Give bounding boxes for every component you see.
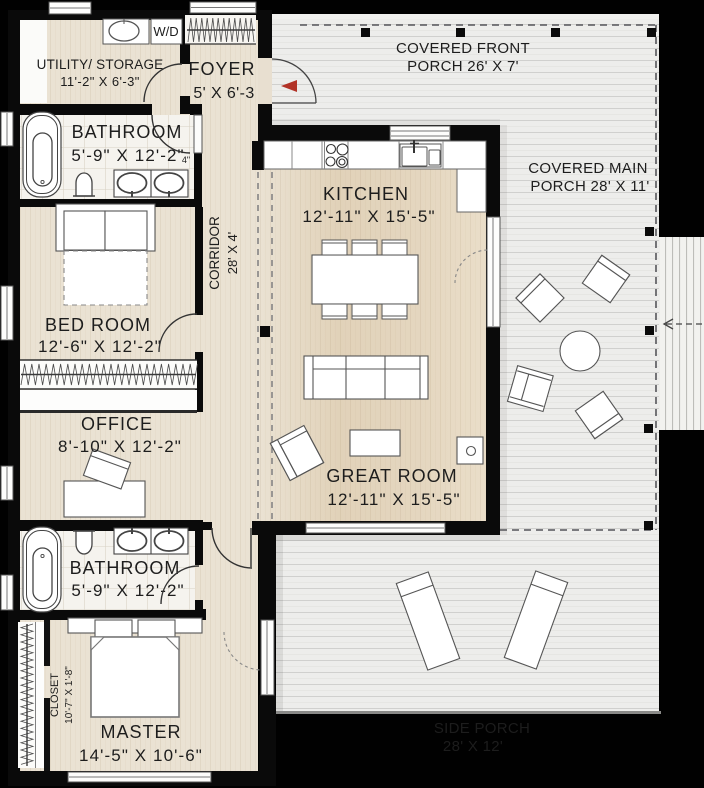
svg-text:W/D: W/D <box>153 24 178 39</box>
svg-text:BED ROOM: BED ROOM <box>45 315 151 335</box>
svg-text:PORCH 26' X 7': PORCH 26' X 7' <box>407 58 519 75</box>
svg-text:5'-9" X 12'-2": 5'-9" X 12'-2" <box>71 146 184 165</box>
svg-text:4": 4" <box>182 155 190 165</box>
svg-text:14'-5" X 10'-6": 14'-5" X 10'-6" <box>79 746 203 765</box>
svg-text:12'-11" X 15'-5": 12'-11" X 15'-5" <box>327 490 460 509</box>
svg-text:UTILITY/ STORAGE: UTILITY/ STORAGE <box>37 57 164 72</box>
svg-text:GREAT ROOM: GREAT ROOM <box>326 466 457 486</box>
svg-text:BATHROOM: BATHROOM <box>72 122 183 142</box>
svg-text:5'-9" X 12'-2": 5'-9" X 12'-2" <box>71 581 184 600</box>
svg-text:10'-7" X 1'-8": 10'-7" X 1'-8" <box>64 666 75 724</box>
svg-text:11'-2" X 6'-3": 11'-2" X 6'-3" <box>60 74 140 89</box>
svg-text:5' X 6'-3: 5' X 6'-3 <box>193 85 254 102</box>
svg-text:COVERED FRONT: COVERED FRONT <box>396 40 530 57</box>
svg-text:28' X 12': 28' X 12' <box>443 738 503 755</box>
svg-text:CORRIDOR: CORRIDOR <box>207 216 222 290</box>
svg-text:KITCHEN: KITCHEN <box>323 184 409 204</box>
svg-text:OFFICE: OFFICE <box>81 414 153 434</box>
svg-text:FOYER: FOYER <box>188 59 255 79</box>
svg-text:SIDE PORCH: SIDE PORCH <box>434 720 530 737</box>
svg-text:28' X 4': 28' X 4' <box>225 232 240 275</box>
svg-text:PORCH 28' X 11': PORCH 28' X 11' <box>530 178 649 195</box>
svg-text:8'-10" X 12'-2": 8'-10" X 12'-2" <box>58 437 182 456</box>
svg-text:CLOSET: CLOSET <box>49 673 61 717</box>
svg-text:COVERED MAIN: COVERED MAIN <box>528 160 647 177</box>
svg-text:MASTER: MASTER <box>100 722 181 742</box>
svg-text:12'-11" X 15'-5": 12'-11" X 15'-5" <box>302 207 435 226</box>
svg-text:12'-6" X 12'-2": 12'-6" X 12'-2" <box>38 337 162 356</box>
svg-text:BATHROOM: BATHROOM <box>70 558 181 578</box>
